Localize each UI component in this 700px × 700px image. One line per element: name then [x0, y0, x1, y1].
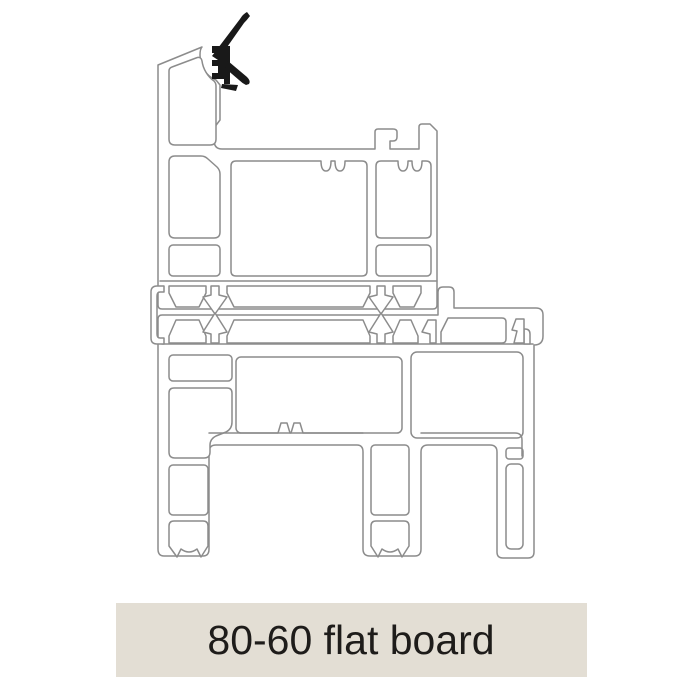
rail-cell — [441, 318, 506, 343]
chamber — [169, 355, 232, 381]
banner-label: 80-60 flat board — [207, 617, 494, 663]
upper-sash-profile — [158, 47, 437, 314]
chamber-notched — [376, 161, 431, 238]
chamber — [411, 352, 523, 438]
chamber-stepped — [169, 388, 232, 458]
chamber — [376, 245, 431, 276]
right-lip-hook — [524, 329, 530, 344]
rail-cell — [169, 320, 206, 343]
product-label-banner: 80-60 flat board — [116, 603, 587, 677]
top-seal-gasket — [212, 12, 250, 91]
rail-cell — [227, 286, 370, 307]
chamber — [506, 464, 523, 549]
profile-diagram: 80-60 flat board — [0, 0, 700, 700]
chamber-scalloped — [371, 521, 409, 557]
rail-cell — [169, 286, 206, 307]
chamber — [506, 448, 523, 459]
chamber — [169, 465, 208, 515]
lower-frame-profile — [158, 287, 543, 558]
chamber — [236, 357, 402, 433]
gasket-foot — [221, 84, 238, 91]
chamber-notched — [231, 161, 367, 276]
chamber — [169, 245, 220, 276]
chamber — [169, 156, 220, 238]
chamber-scalloped — [169, 521, 208, 557]
chamber — [169, 57, 216, 145]
rail-cell — [227, 320, 370, 343]
chamber — [371, 445, 409, 515]
